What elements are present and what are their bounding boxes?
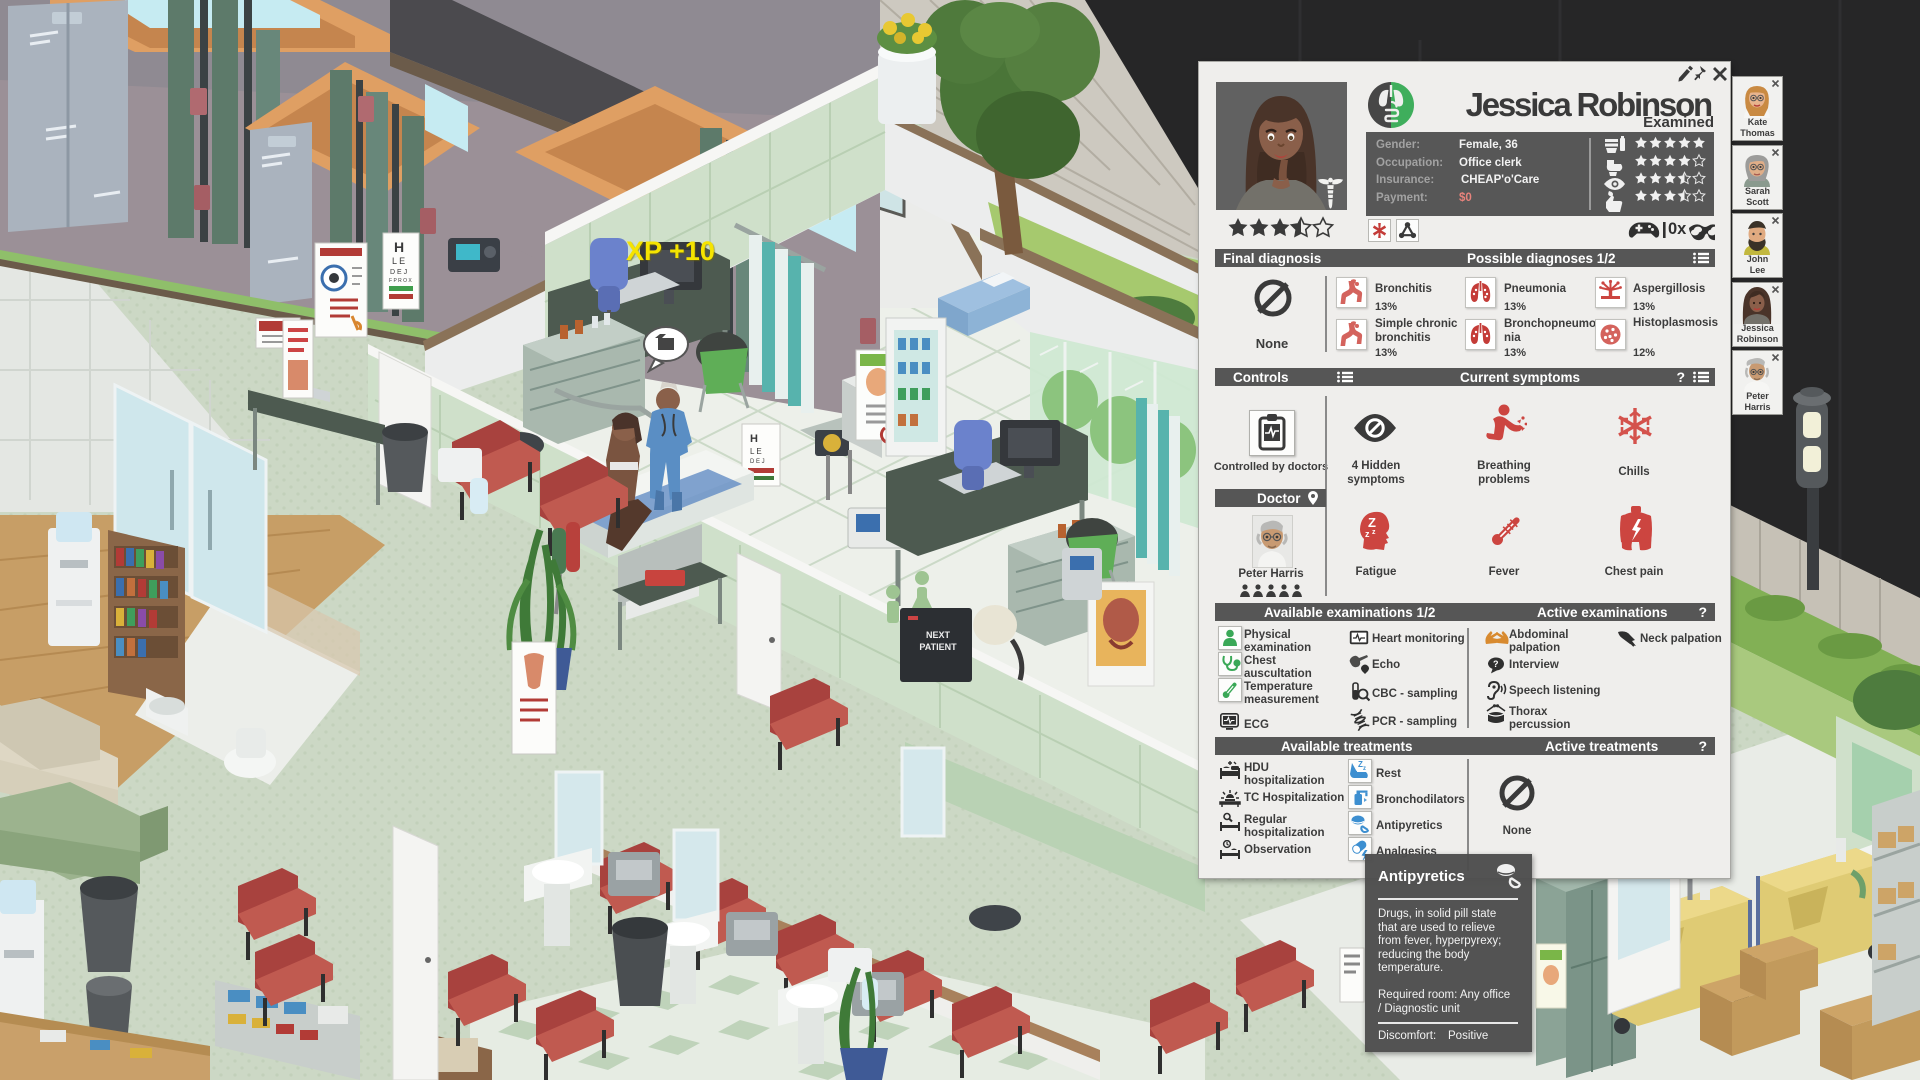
svg-text:H: H bbox=[394, 239, 404, 255]
svg-text:PATIENT: PATIENT bbox=[919, 642, 957, 652]
svg-text:?: ? bbox=[1493, 659, 1499, 669]
svg-text:z: z bbox=[1363, 766, 1366, 772]
svg-text:NEXT: NEXT bbox=[926, 630, 951, 640]
svg-text:H: H bbox=[750, 433, 758, 445]
svg-text:D E J: D E J bbox=[390, 269, 407, 276]
svg-text:L E: L E bbox=[750, 447, 762, 456]
svg-text:F P R O X: F P R O X bbox=[389, 278, 412, 284]
svg-text:Z: Z bbox=[1368, 515, 1376, 530]
svg-text:z: z bbox=[1365, 529, 1370, 539]
svg-text:L E: L E bbox=[392, 256, 405, 266]
svg-text:D E J: D E J bbox=[750, 459, 765, 465]
svg-text:z: z bbox=[1372, 529, 1376, 536]
